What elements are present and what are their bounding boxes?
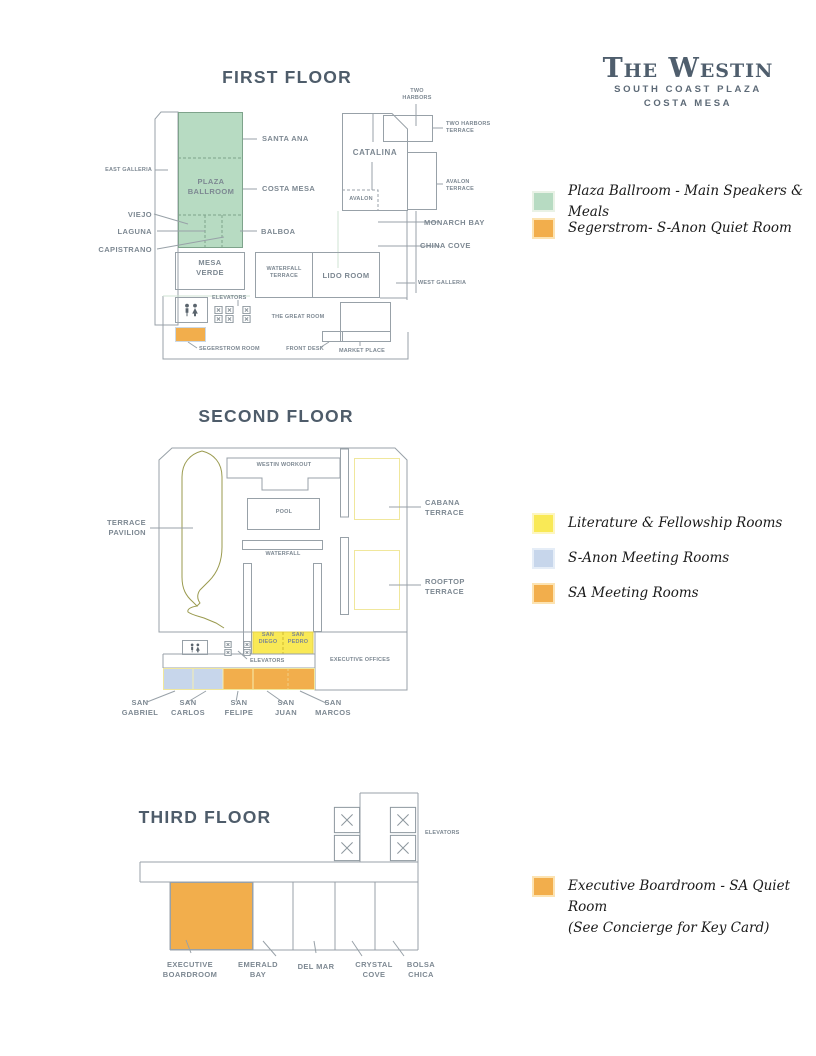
room-label-china-cove: CHINA COVE — [420, 241, 471, 251]
legend-swatch-orange3 — [532, 876, 555, 897]
elevator-x-icon — [390, 835, 415, 860]
elevator-x-icon — [244, 641, 250, 647]
restroom-icon — [185, 304, 198, 317]
legend-segerstrom: Segerstrom- S-Anon Quiet Room — [532, 218, 792, 239]
room-label-costa-mesa: COSTA MESA — [262, 184, 315, 194]
room-label-avalon: AVALON — [349, 196, 373, 203]
room-label-west-galleria: WEST GALLERIA — [418, 280, 466, 287]
segerstrom-room-area — [176, 328, 206, 342]
first-floor-title: FIRST FLOOR — [222, 67, 352, 88]
elevator-x-icon — [243, 306, 250, 313]
san-felipe-area — [223, 668, 253, 690]
legend-executive-boardroom: Executive Boardroom - SA Quiet Room (See… — [532, 876, 816, 939]
elevator-x-icon — [225, 641, 231, 647]
legend-swatch-green — [532, 191, 555, 212]
legend-swatch-yellow — [532, 513, 555, 534]
room-label-elevators-f2: ELEVATORS — [250, 658, 285, 665]
elevator-x-icon — [215, 306, 222, 313]
room-label-front-desk: FRONT DESK — [286, 346, 324, 353]
floor-plan-page: The Westin SOUTH COAST PLAZA COSTA MESA … — [0, 0, 816, 1056]
cabana-terrace-area — [355, 459, 400, 520]
room-label-emerald-bay: EMERALD BAY — [238, 960, 278, 980]
room-label-san-felipe: SAN FELIPE — [225, 698, 254, 718]
legend-sanon: S-Anon Meeting Rooms — [532, 548, 729, 569]
legend-label: S-Anon Meeting Rooms — [568, 548, 729, 569]
executive-boardroom-area — [171, 883, 253, 950]
room-label-san-marcos: SAN MARCOS — [315, 698, 351, 718]
legend-label: Executive Boardroom - SA Quiet Room (See… — [568, 876, 816, 939]
room-label-san-diego: SAN DIEGO — [259, 632, 278, 646]
third-floor-title: THIRD FLOOR — [139, 807, 272, 828]
westin-logo: The Westin — [603, 53, 774, 84]
elevator-x-icon — [215, 315, 222, 322]
room-label-viejo: VIEJO — [128, 210, 152, 220]
legend-swatch-orange2 — [532, 583, 555, 604]
logo-subtitle-plaza: SOUTH COAST PLAZA — [614, 84, 762, 95]
room-label-east-galleria: EAST GALLERIA — [105, 167, 152, 174]
rooftop-terrace-area — [355, 551, 400, 610]
elevator-x-icon — [226, 306, 233, 313]
room-label-san-juan: SAN JUAN — [275, 698, 297, 718]
room-label-bolsa-chica: BOLSA CHICA — [407, 960, 435, 980]
elevator-x-icon — [225, 649, 231, 655]
legend-plaza-ballroom: Plaza Ballroom - Main Speakers & Meals — [532, 181, 816, 223]
elevator-x-icon — [243, 315, 250, 322]
legend-label: Literature & Fellowship Rooms — [568, 513, 782, 534]
room-label-waterfall-terrace: WATERFALL TERRACE — [267, 266, 302, 280]
room-label-del-mar: DEL MAR — [298, 962, 335, 972]
room-label-segerstrom: SEGERSTROM ROOM — [199, 346, 260, 353]
elevator-x-icon — [390, 807, 415, 832]
room-label-great-room: THE GREAT ROOM — [272, 314, 325, 321]
room-label-westin-workout: WESTIN WORKOUT — [257, 462, 312, 469]
room-label-san-gabriel: SAN GABRIEL — [122, 698, 159, 718]
room-label-cabana-terrace: CABANA TERRACE — [425, 498, 464, 518]
room-label-santa-ana: SANTA ANA — [262, 134, 309, 144]
room-label-elevators-f1: ELEVATORS — [212, 295, 247, 302]
restroom-icon — [191, 644, 200, 653]
room-label-mesa-verde: MESA VERDE — [196, 258, 224, 278]
elevator-x-icon — [334, 835, 359, 860]
legend-label: SA Meeting Rooms — [568, 583, 699, 604]
room-label-rooftop-terrace: ROOFTOP TERRACE — [425, 577, 465, 597]
room-label-market-place: MARKET PLACE — [339, 348, 385, 355]
room-label-elevators-f3: ELEVATORS — [425, 830, 460, 837]
room-label-pool: POOL — [276, 509, 292, 516]
elevator-x-icon — [244, 649, 250, 655]
logo-subtitle-city: COSTA MESA — [644, 98, 732, 109]
room-label-terrace-pavilion: TERRACE PAVILION — [107, 518, 146, 538]
second-floor-title: SECOND FLOOR — [198, 406, 353, 427]
elevator-x-icon — [334, 807, 359, 832]
room-label-capistrano: CAPISTRANO — [98, 245, 152, 255]
room-label-catalina: CATALINA — [353, 148, 398, 158]
room-label-two-harbors-terrace: TWO HARBORS TERRACE — [446, 121, 490, 135]
room-label-avalon-terrace: AVALON TERRACE — [446, 179, 474, 193]
san-juan-area — [253, 668, 283, 690]
legend-sa-meeting: SA Meeting Rooms — [532, 583, 699, 604]
legend-label: Plaza Ballroom - Main Speakers & Meals — [568, 181, 816, 223]
room-label-monarch-bay: MONARCH BAY — [424, 218, 485, 228]
legend-literature: Literature & Fellowship Rooms — [532, 513, 782, 534]
room-label-crystal-cove: CRYSTAL COVE — [355, 960, 392, 980]
room-label-executive-boardroom: EXECUTIVE BOARDROOM — [163, 960, 217, 980]
san-gabriel-area — [163, 668, 193, 690]
legend-label: Segerstrom- S-Anon Quiet Room — [568, 218, 792, 239]
room-label-laguna: LAGUNA — [118, 227, 152, 237]
room-label-two-harbors: TWO HARBORS — [402, 88, 431, 102]
room-label-lido-room: LIDO ROOM — [323, 271, 370, 281]
room-label-san-pedro: SAN PEDRO — [288, 632, 309, 646]
terrace-pavilion-outline — [182, 451, 224, 628]
room-label-balboa: BALBOA — [261, 227, 295, 237]
elevator-x-icon — [226, 315, 233, 322]
room-label-plaza-ballroom: PLAZA BALLROOM — [188, 177, 235, 197]
room-label-executive-offices: EXECUTIVE OFFICES — [330, 657, 390, 664]
room-label-waterfall: WATERFALL — [266, 551, 301, 558]
legend-swatch-blue — [532, 548, 555, 569]
legend-swatch-orange — [532, 218, 555, 239]
san-carlos-area — [193, 668, 223, 690]
room-label-san-carlos: SAN CARLOS — [171, 698, 205, 718]
